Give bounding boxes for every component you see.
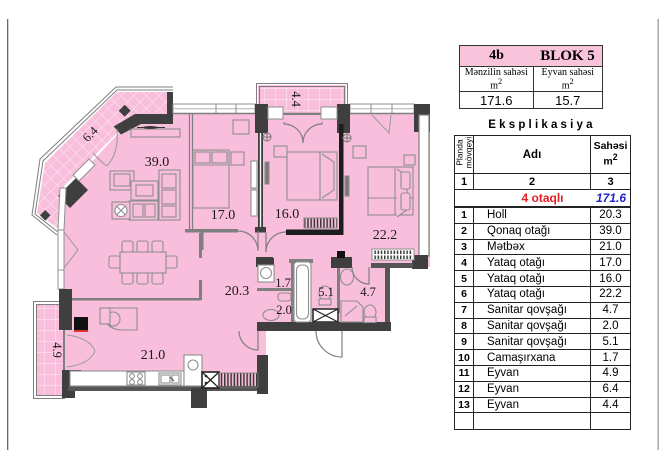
svg-text:20.3: 20.3	[225, 284, 250, 299]
svg-text:2.0: 2.0	[276, 303, 292, 317]
svg-text:22.2: 22.2	[373, 228, 398, 243]
svg-text:39.0: 39.0	[145, 155, 170, 170]
svg-text:17.0: 17.0	[211, 208, 236, 223]
svg-text:4.9: 4.9	[50, 342, 64, 358]
svg-text:4.4: 4.4	[289, 91, 303, 107]
svg-text:5.1: 5.1	[318, 285, 334, 299]
svg-text:16.0: 16.0	[275, 207, 300, 222]
svg-text:1.7: 1.7	[275, 276, 291, 290]
svg-text:21.0: 21.0	[141, 348, 166, 363]
svg-text:4.7: 4.7	[360, 285, 376, 299]
